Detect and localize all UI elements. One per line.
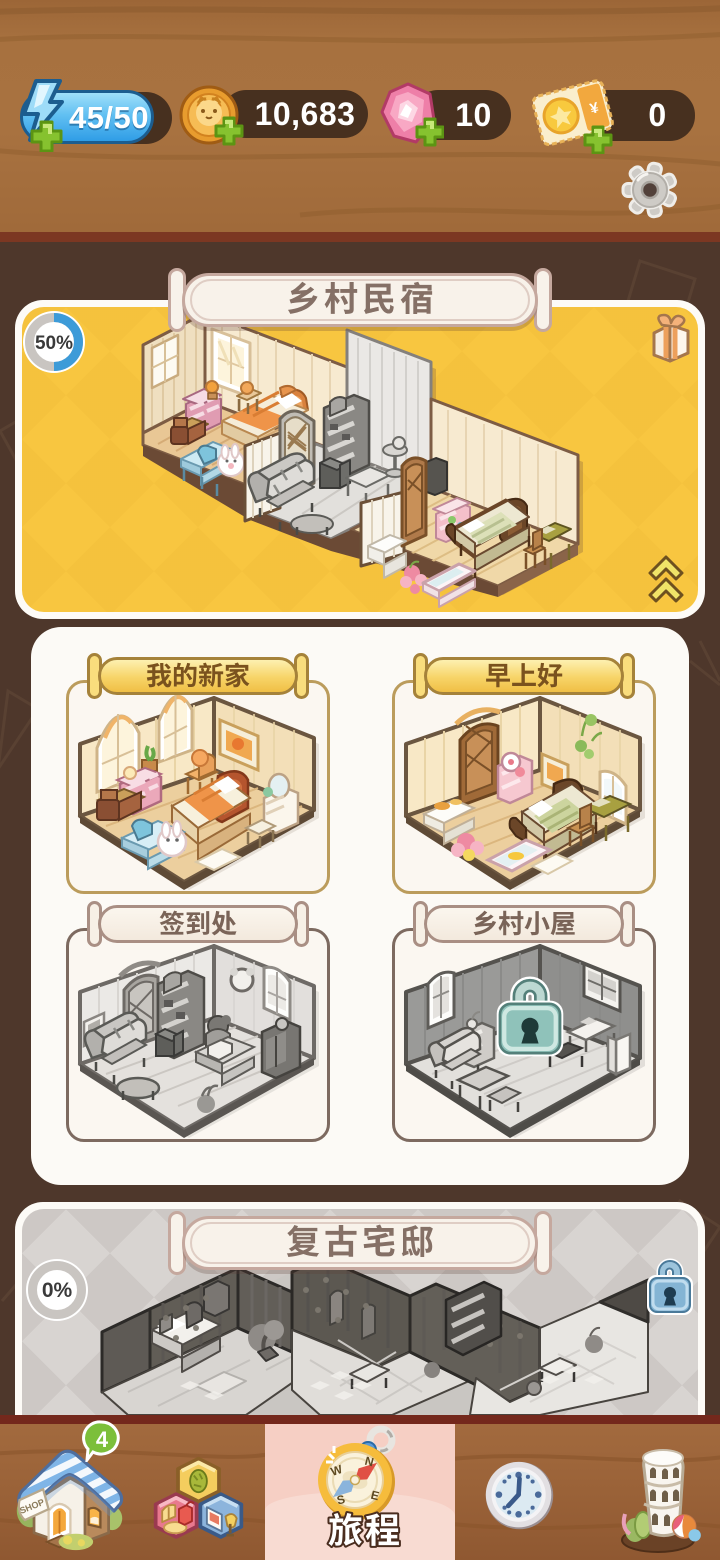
svg-text:4: 4 <box>96 1427 109 1452</box>
svg-text:0%: 0% <box>42 1279 73 1302</box>
svg-text:50%: 50% <box>35 333 73 354</box>
